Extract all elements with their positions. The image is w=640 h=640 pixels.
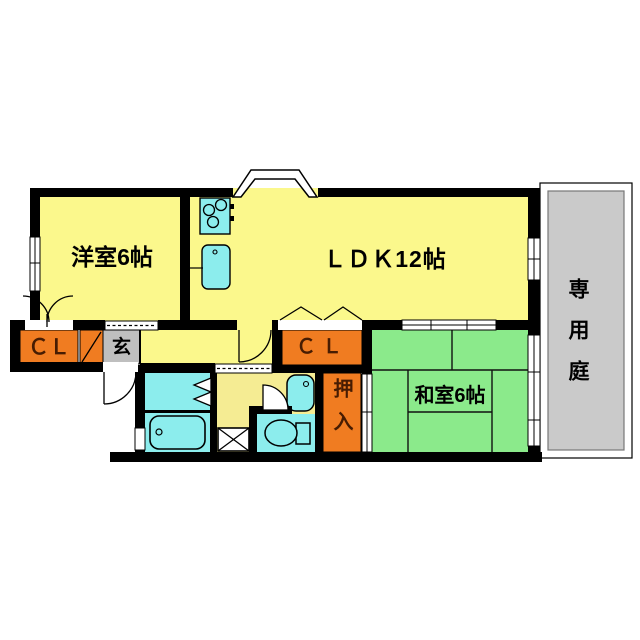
ldk-japanese-room-sliding-doors <box>402 320 496 330</box>
western-room-label: 洋室6帖 <box>38 246 186 269</box>
western-room-sliding-door <box>105 321 158 330</box>
toilet-icon <box>265 420 310 446</box>
powder-room-sliding-door <box>215 364 272 373</box>
washbasin-icon <box>287 375 314 411</box>
floorplan-drawing <box>0 0 640 640</box>
ldk-window <box>528 238 540 280</box>
washing-machine-pan-icon <box>218 428 249 451</box>
washroom-floor <box>145 373 212 410</box>
japanese-room-label: 和室6帖 <box>396 386 504 406</box>
ldk-label: ＬＤＫ12帖 <box>300 248 470 271</box>
japanese-room-window <box>528 335 540 446</box>
oshiire-fusuma <box>362 374 372 452</box>
bathroom-window <box>135 428 145 450</box>
entrance-label: 玄 <box>103 338 140 357</box>
bathtub-icon <box>150 416 205 449</box>
closet-left-label: ＣＬ <box>20 337 78 358</box>
closet-middle-label: ＣＬ <box>282 337 362 357</box>
private-garden-label: 専用庭 <box>567 278 588 401</box>
oshiire-label: 押入 <box>331 378 351 444</box>
kitchen-stove-icon <box>200 198 234 234</box>
floorplan-image: { "floorplan": { "type": "japanese-apart… <box>0 0 640 640</box>
shoe-cabinet <box>80 330 103 364</box>
entrance-door <box>103 362 138 404</box>
